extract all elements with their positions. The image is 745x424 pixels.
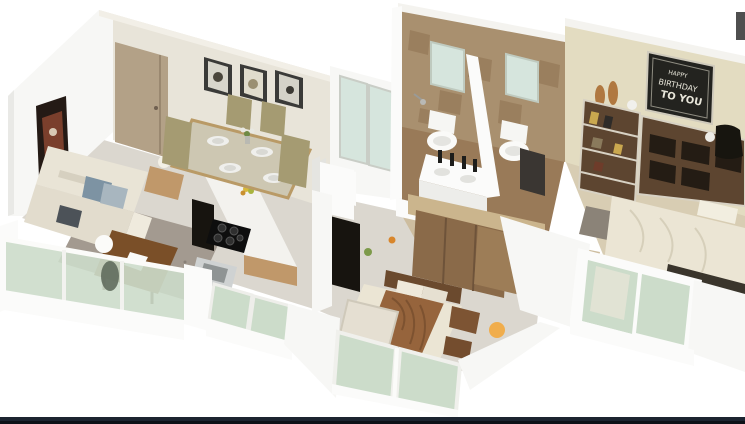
balcony-lamp-base: [101, 261, 119, 291]
toilet-1-seat: [433, 136, 451, 146]
dining-chair-east: [278, 134, 310, 188]
front-corner-wall: [284, 304, 340, 398]
master-window-pane-2: [636, 274, 690, 345]
dining-chair-north-1: [226, 94, 252, 130]
sideboard-bag: [715, 125, 743, 159]
bathroom2-window: [506, 54, 538, 102]
kitchen-counter-fruit: [389, 237, 396, 244]
picture-1-figure: [213, 72, 223, 82]
wardrobe-glow-2: [489, 322, 505, 338]
dining-chair-north-2: [260, 101, 286, 137]
entry-glass-door-pane-2: [369, 85, 392, 171]
master-bookshelf: [579, 100, 640, 202]
bedroom2-west-wall: [312, 190, 332, 314]
bathroom1-window: [431, 42, 464, 92]
master-right-pier: [688, 280, 745, 372]
west-wall-edge-shade: [8, 90, 14, 216]
west-wall-art-detail: [49, 128, 57, 136]
washbasin-sink-1: [434, 168, 450, 176]
floor-plan-render: HAPPY BIRTHDAY TO YOU: [0, 0, 745, 424]
washbasin-sink-2: [460, 175, 476, 183]
dining-chair-west: [162, 116, 192, 170]
picture-2-figure: [248, 79, 258, 89]
bottom-bar: [0, 417, 745, 421]
balcony-lamp-sphere: [95, 235, 113, 253]
corner-notch: [736, 12, 745, 40]
master-window-reflection: [590, 266, 630, 320]
decor-cup: [627, 100, 637, 110]
sideboard-kettle: [705, 132, 715, 142]
door-handle: [154, 106, 158, 110]
bedroom2-tv-panel: [330, 216, 360, 292]
entry-glass-door-pane-1: [340, 76, 367, 164]
bathroom2-dark-unit: [520, 148, 545, 196]
floor-plan-canvas: HAPPY BIRTHDAY TO YOU: [0, 0, 745, 424]
picture-3-figure: [286, 86, 294, 94]
bathroom-west-wall: [390, 6, 402, 200]
shower-head-1: [420, 99, 426, 105]
kitchen-counter-plant: [364, 248, 372, 256]
